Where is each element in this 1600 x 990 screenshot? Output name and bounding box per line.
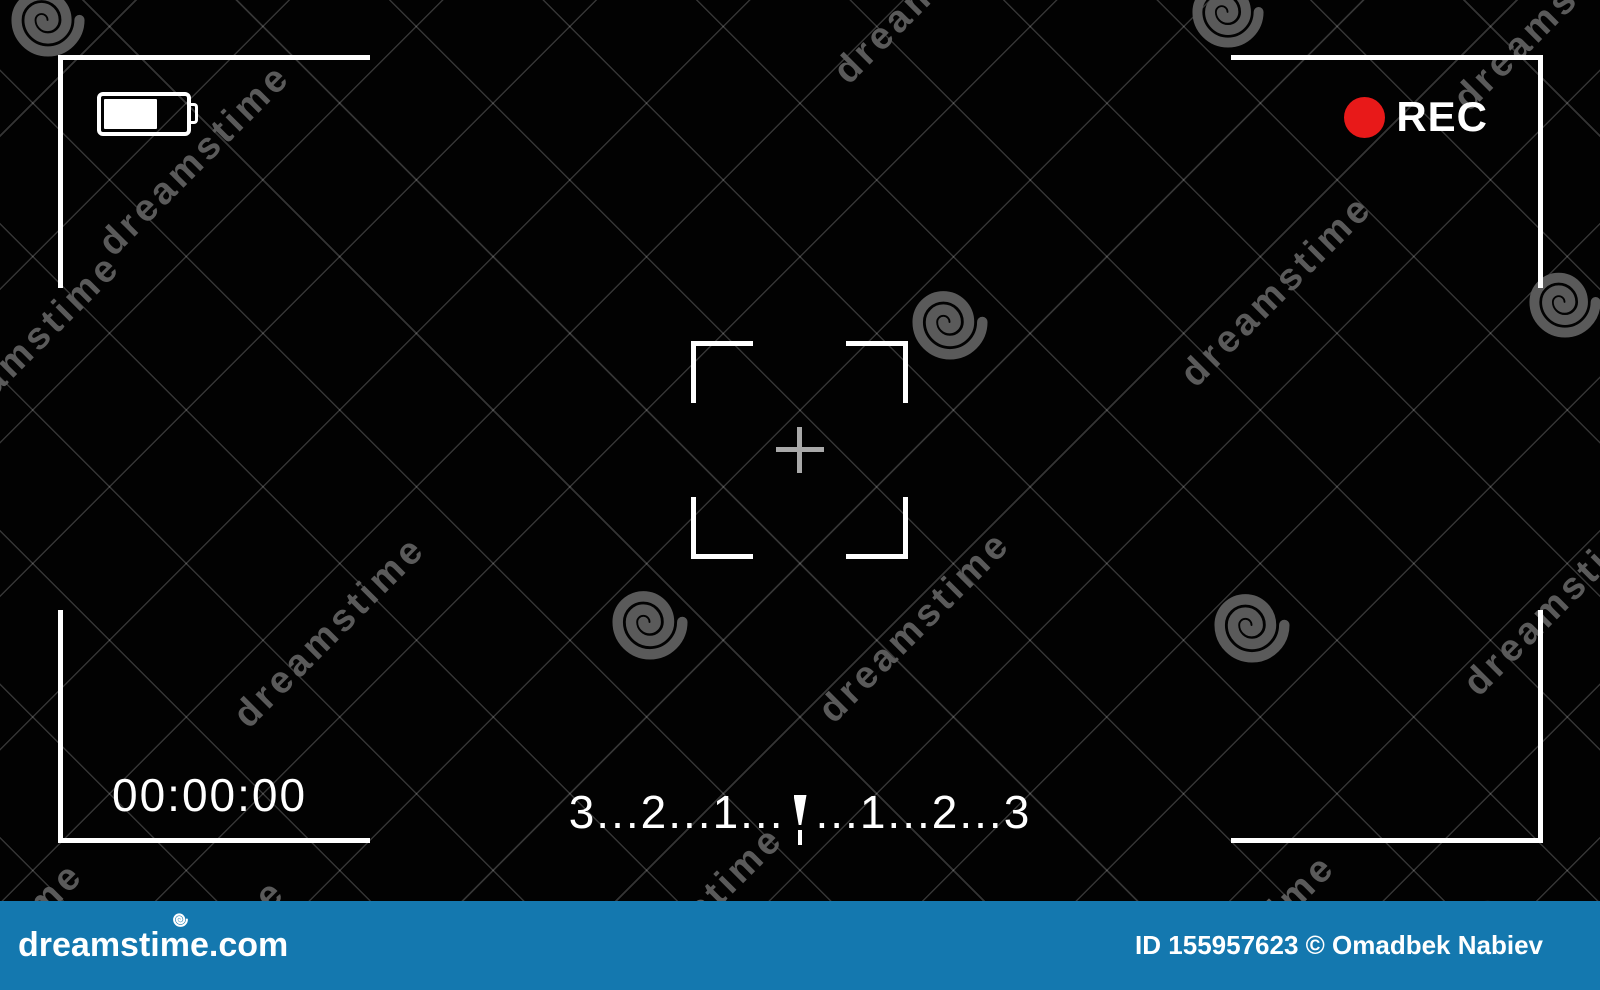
footer-logo-spiral-icon [173,912,188,927]
rec-indicator: REC [1344,95,1488,139]
footer-site-text: dreamstime.com [18,926,288,964]
battery-terminal [189,103,198,124]
battery-icon [97,92,191,136]
watermark-spiral-icon [912,284,988,360]
exposure-scale-right: ...1...2...3 [816,787,1032,837]
exposure-scale: 3...2...1... ...1...2...3 [0,787,1600,845]
focus-corner-top-left [691,341,753,403]
watermark-spiral-icon [612,584,688,660]
crosshair-icon [797,427,802,473]
exposure-marker-wedge [794,795,807,825]
focus-frame [691,341,908,559]
focus-corner-bottom-right [846,497,908,559]
camera-viewfinder-screen: dreamstime dreamstime dreamstime dreamst… [0,0,1600,990]
watermark-spiral-icon [1192,0,1264,48]
frame-corner-top-left [58,55,370,288]
footer-credit: ID 155957623 © Omadbek Nabiev [1135,930,1543,961]
rec-label: REC [1396,95,1488,139]
frame-corner-top-right [1231,55,1543,288]
exposure-marker-icon [794,795,807,845]
rec-dot-icon [1344,97,1385,138]
exposure-scale-left: 3...2...1... [569,787,785,837]
exposure-marker-tick [798,830,802,845]
focus-corner-top-right [846,341,908,403]
watermark-spiral-icon [11,0,85,57]
watermark-footer-bar: dreamstime.com ID 155957623 © Omadbek Na… [0,901,1600,990]
focus-corner-bottom-left [691,497,753,559]
battery-fill-level [104,99,157,129]
footer-brand-logo: dreamstime.com [18,926,288,965]
